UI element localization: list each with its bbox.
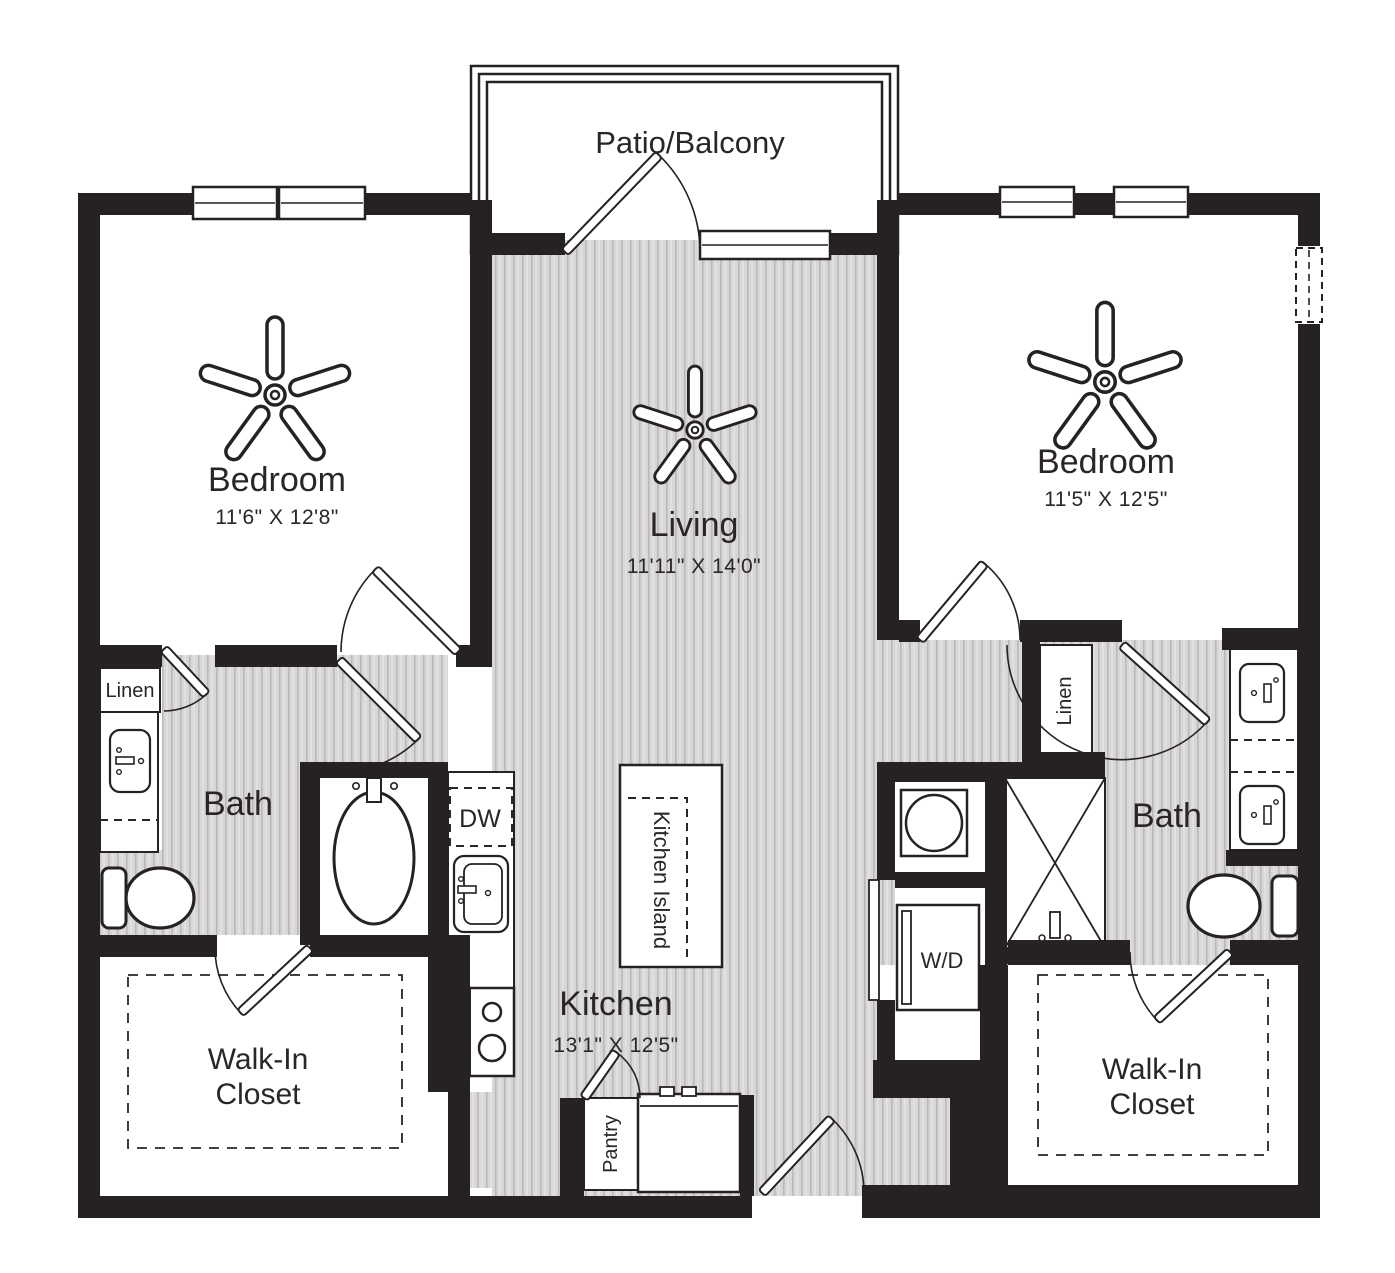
wall-segment [899, 620, 920, 642]
wall-segment [100, 645, 162, 667]
wall-segment [877, 1000, 895, 1060]
wall-segment [78, 193, 100, 1218]
wall-segment [78, 1196, 752, 1218]
bedroom-left-dims: 11'6" X 12'8" [215, 506, 339, 529]
closet-left-label-2: Closet [215, 1078, 301, 1111]
utility-door-panel [869, 880, 879, 1000]
dishwasher-label: DW [459, 805, 501, 833]
window-bedroom-left [193, 187, 365, 219]
bath-left-label: Bath [203, 785, 273, 823]
refrigerator-icon [638, 1094, 740, 1192]
wall-segment [1008, 940, 1130, 965]
wall-segment [1020, 620, 1122, 642]
wall-segment [895, 872, 985, 888]
kitchen-sink-icon [454, 856, 508, 932]
wall-segment [862, 1185, 1320, 1218]
wall-segment [560, 1098, 584, 1196]
wall-segment [365, 193, 470, 215]
wall-segment [470, 215, 492, 645]
wall-segment [100, 935, 217, 957]
sink-icon [1240, 664, 1284, 722]
wall-segment [877, 215, 899, 640]
kitchen-label: Kitchen [559, 985, 672, 1023]
toilet-icon [102, 868, 194, 928]
sink-icon [1240, 786, 1284, 844]
bedroom-left-label: Bedroom [208, 461, 346, 499]
wall-segment [456, 645, 492, 667]
wall-segment [1074, 193, 1114, 215]
bedroom-right-dims: 11'5" X 12'5" [1044, 488, 1168, 511]
window-patio [700, 231, 830, 259]
sink-icon [110, 730, 150, 792]
wall-segment [215, 645, 337, 667]
living-label: Living [650, 506, 739, 544]
patio-label: Patio/Balcony [595, 125, 785, 160]
bedroom-right-label: Bedroom [1037, 443, 1175, 481]
linen-left-label: Linen [106, 680, 155, 702]
wall-segment [300, 762, 320, 945]
wall-segment [1226, 850, 1320, 866]
window-right-wall-dashed [1296, 248, 1322, 322]
toilet-icon [1188, 875, 1298, 937]
wall-segment [78, 193, 195, 215]
window-bedroom-right-1 [1000, 187, 1074, 217]
closet-right-label-1: Walk-In [1102, 1053, 1203, 1086]
closet-left-label-1: Walk-In [208, 1043, 309, 1076]
pantry-label: Pantry [600, 1115, 622, 1173]
wall-segment [899, 193, 1000, 215]
wall-segment [448, 935, 470, 1196]
kitchen-floor-sliver [470, 1092, 562, 1188]
wall-segment [1222, 628, 1320, 650]
floor-plan: Patio/Balcony Bedroom 11'6" X 12'8" Livi… [0, 0, 1395, 1268]
wall-segment [877, 762, 895, 880]
wall-segment [1230, 940, 1320, 965]
kitchen-dims: 13'1" X 12'5" [553, 1034, 678, 1057]
wall-segment [1298, 324, 1320, 1218]
wall-segment [310, 935, 470, 957]
wall-segment [950, 1098, 980, 1188]
laundry-tub-icon [901, 790, 967, 856]
wall-segment [980, 965, 1008, 1188]
wall-segment [300, 762, 448, 778]
floor-plan-page: Patio/Balcony Bedroom 11'6" X 12'8" Livi… [0, 0, 1395, 1268]
closet-right-label-2: Closet [1109, 1088, 1195, 1121]
wall-segment [428, 762, 448, 1092]
kitchen-island-label: Kitchen Island [649, 811, 674, 949]
living-dims: 11'11" X 14'0" [627, 555, 761, 578]
bath-right-label: Bath [1132, 797, 1202, 835]
linen-right-label: Linen [1054, 677, 1076, 726]
living-kitchen-floor [492, 240, 877, 1196]
wall-segment [1005, 762, 1105, 778]
wall-segment [1298, 193, 1320, 246]
wall-segment [873, 1060, 980, 1098]
window-bedroom-right-2 [1114, 187, 1188, 217]
washer-dryer-label: W/D [921, 948, 964, 973]
wall-segment [740, 1095, 754, 1196]
